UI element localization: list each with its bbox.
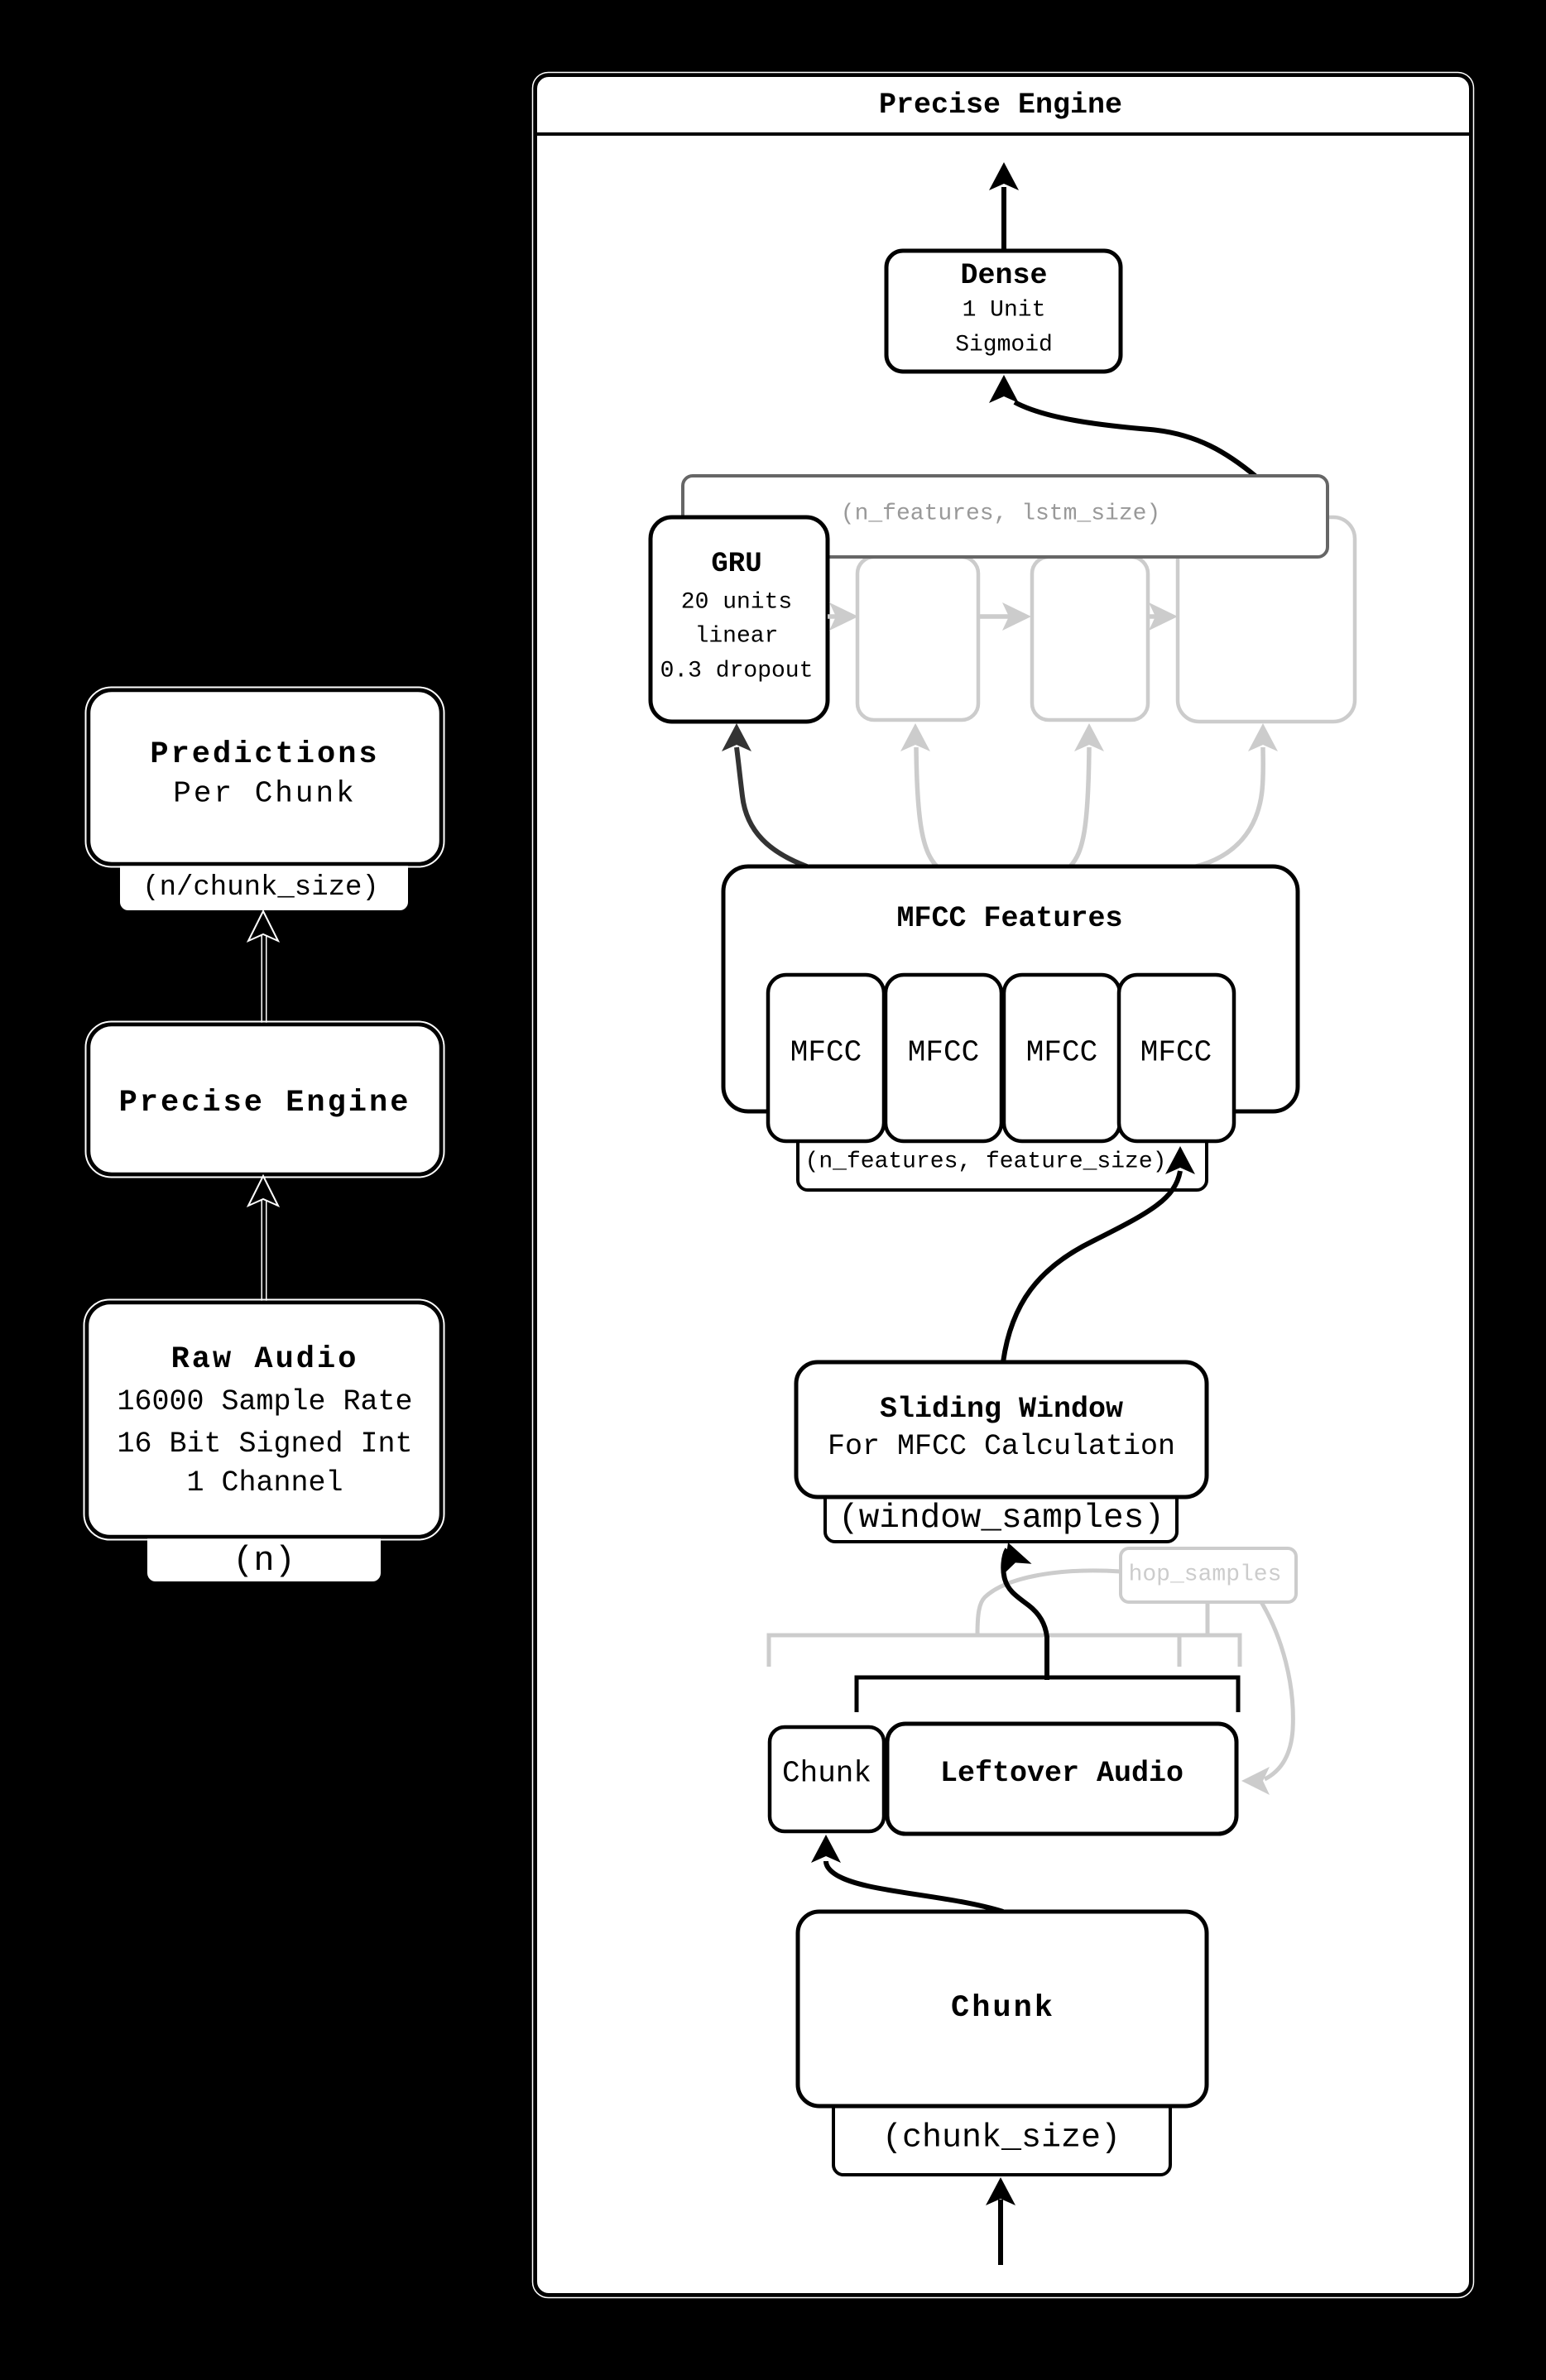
svg-text:Per Chunk: Per Chunk xyxy=(173,777,356,811)
svg-text:MFCC: MFCC xyxy=(790,1036,862,1070)
svg-text:hop_samples: hop_samples xyxy=(1129,1562,1282,1588)
svg-text:MFCC: MFCC xyxy=(1140,1036,1212,1070)
svg-text:(n_features, lstm_size): (n_features, lstm_size) xyxy=(841,501,1160,527)
svg-text:Sigmoid: Sigmoid xyxy=(955,333,1053,358)
svg-text:MFCC Features: MFCC Features xyxy=(896,902,1122,935)
svg-text:(n/chunk_size): (n/chunk_size) xyxy=(142,872,379,904)
svg-text:(n_features, feature_size): (n_features, feature_size) xyxy=(805,1149,1167,1175)
svg-text:(window_samples): (window_samples) xyxy=(838,1499,1164,1538)
svg-text:Chunk: Chunk xyxy=(782,1757,871,1791)
svg-text:1 Channel: 1 Channel xyxy=(186,1466,343,1499)
svg-text:Chunk: Chunk xyxy=(951,1991,1055,2026)
svg-text:Sliding Window: Sliding Window xyxy=(880,1393,1123,1426)
svg-text:(n): (n) xyxy=(233,1541,295,1581)
svg-text:Raw Audio: Raw Audio xyxy=(171,1342,359,1377)
svg-text:Leftover Audio: Leftover Audio xyxy=(940,1757,1184,1790)
svg-text:MFCC: MFCC xyxy=(1026,1036,1097,1070)
svg-text:16 Bit Signed Int: 16 Bit Signed Int xyxy=(117,1428,412,1461)
svg-text:Precise Engine: Precise Engine xyxy=(879,89,1122,122)
svg-text:For MFCC Calculation: For MFCC Calculation xyxy=(828,1430,1175,1463)
svg-text:GRU: GRU xyxy=(711,549,761,580)
svg-text:MFCC: MFCC xyxy=(908,1036,979,1070)
svg-text:Dense: Dense xyxy=(960,259,1047,292)
svg-text:1 Unit: 1 Unit xyxy=(963,298,1046,324)
svg-text:(chunk_size): (chunk_size) xyxy=(882,2120,1121,2157)
svg-text:16000 Sample Rate: 16000 Sample Rate xyxy=(117,1385,412,1418)
svg-text:20 units: 20 units xyxy=(681,590,792,616)
svg-text:Precise Engine: Precise Engine xyxy=(119,1086,411,1120)
svg-text:Predictions: Predictions xyxy=(150,737,379,772)
svg-text:linear: linear xyxy=(695,624,779,650)
svg-text:0.3 dropout: 0.3 dropout xyxy=(660,659,814,684)
